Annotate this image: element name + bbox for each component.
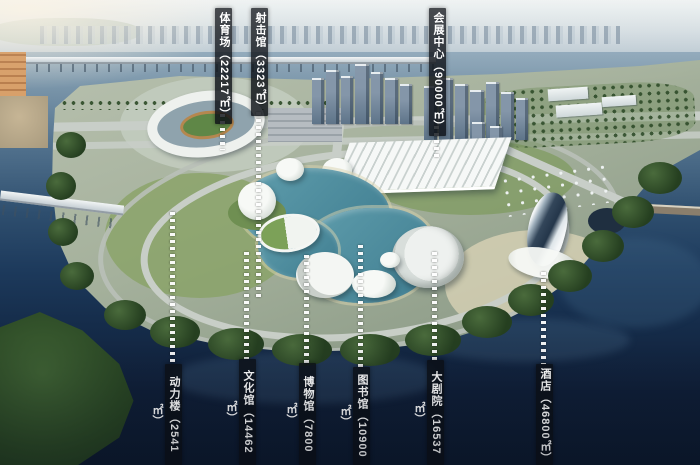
dome-pavilion [276,158,304,181]
sky-haze [0,0,240,90]
shore-trees [104,300,146,330]
label-museum: 博物馆（7800㎡） [299,363,316,465]
label-power-building: 动力楼（2541㎡） [165,364,182,465]
tower-block [501,92,514,140]
label-cultural-center: 文化馆（14462㎡） [239,359,256,465]
shore-trees [56,132,86,158]
label-grand-theater: 大剧院（16537㎡） [427,360,444,465]
leader-cultural-center [244,252,249,359]
shore-trees [48,218,78,246]
aerial-master-plan-rendering: 体育场（22217㎡） 射击馆（3323㎡） 会展中心（90000㎡） 动力楼（… [0,0,700,465]
label-library: 图书馆（10900㎡） [353,367,370,465]
shore-trees [46,172,76,200]
tower-block [355,64,369,124]
leader-grand-theater [432,252,437,360]
tower-block [400,84,412,124]
shore-trees [60,262,94,290]
leader-library [358,245,363,367]
leader-power-building [170,212,175,364]
shore-trees [340,334,400,366]
leader-shooting-hall [256,112,261,298]
shore-trees [612,196,654,228]
label-convention-center: 会展中心（90000㎡） [429,8,446,136]
shore-trees [462,306,512,338]
shore-trees [508,284,554,316]
tower-block [312,78,324,124]
theater-wing [380,252,400,268]
grand-theater-building [392,226,464,288]
shore-trees [548,260,592,292]
shore-trees [150,316,200,348]
label-hotel: 酒店（46800㎡） [536,364,553,465]
orange-roof-buildings [0,52,26,96]
shore-trees [582,230,624,262]
label-shooting-hall: 射击馆（3323㎡） [251,8,268,116]
label-stadium: 体育场（22217㎡） [215,8,232,124]
tower-block [385,78,398,124]
tower-block [455,84,468,140]
shore-trees [272,334,332,366]
tower-block [341,76,353,124]
shore-trees [208,328,264,360]
tower-block [326,70,339,124]
shore-trees [638,162,682,194]
tan-buildings-left-bank [0,96,48,148]
leader-hotel [541,272,546,364]
leader-museum [304,255,309,363]
tower-block [516,98,528,140]
tower-block [371,72,383,124]
